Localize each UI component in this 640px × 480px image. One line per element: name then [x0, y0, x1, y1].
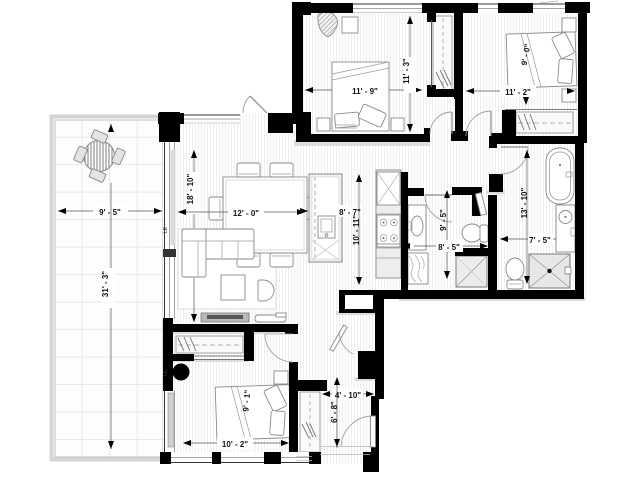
svg-text:12' - 0": 12' - 0" — [233, 209, 259, 218]
svg-text:11' - 9": 11' - 9" — [352, 87, 378, 96]
svg-text:LE: LE — [163, 369, 169, 376]
svg-text:6' - 8": 6' - 8" — [330, 401, 339, 423]
svg-text:10' - 2": 10' - 2" — [222, 440, 248, 449]
svg-text:10' - 11": 10' - 11" — [352, 215, 361, 245]
svg-text:7' - 5": 7' - 5" — [529, 236, 551, 245]
svg-text:18' - 10": 18' - 10" — [186, 173, 195, 204]
svg-text:4' - 10": 4' - 10" — [335, 391, 361, 400]
svg-text:13' - 10": 13' - 10" — [520, 187, 529, 218]
svg-text:LE: LE — [163, 226, 169, 233]
svg-text:31' - 3": 31' - 3" — [101, 271, 110, 297]
svg-text:9' - 5": 9' - 5" — [439, 209, 448, 231]
svg-text:11' - 2": 11' - 2" — [505, 88, 531, 97]
svg-text:9' - 5": 9' - 5" — [99, 208, 121, 217]
svg-text:8' - 5": 8' - 5" — [438, 243, 460, 252]
svg-text:11' - 3": 11' - 3" — [402, 58, 411, 84]
svg-text:9' - 1": 9' - 1" — [241, 389, 252, 412]
